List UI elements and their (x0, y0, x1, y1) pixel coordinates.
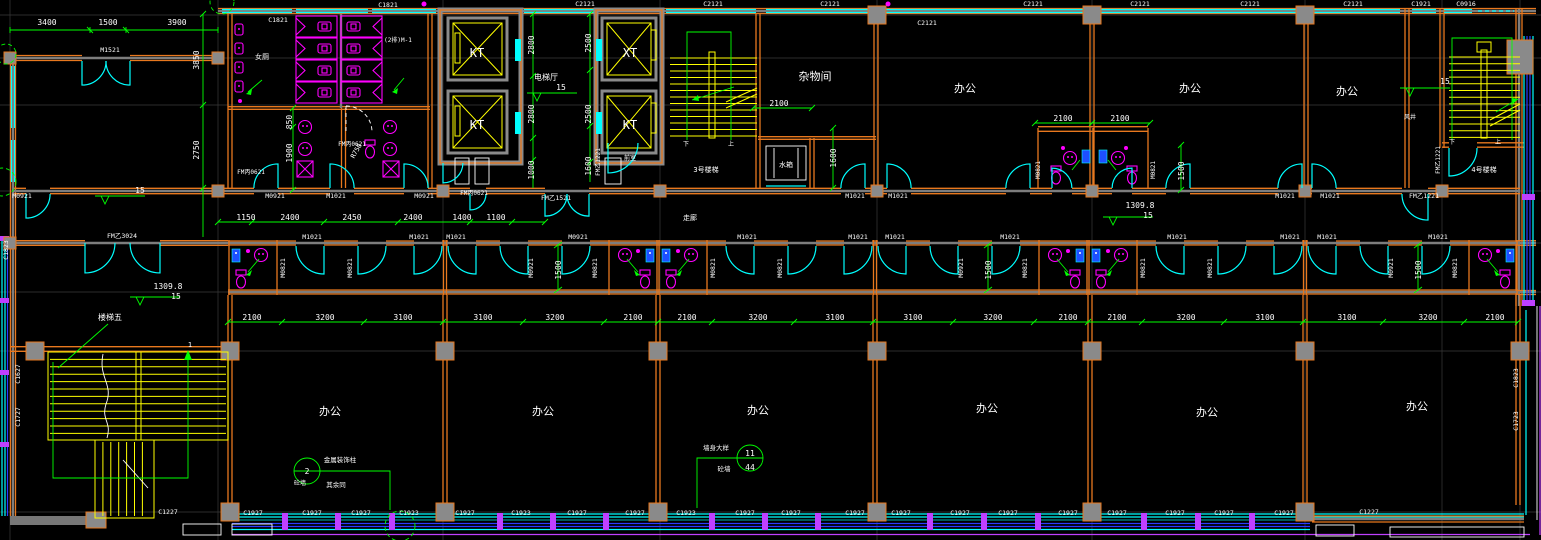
label-text: FM乙1521 (541, 194, 571, 202)
label-text: M0921 (1387, 258, 1395, 278)
label-text: M0921 (265, 192, 285, 200)
sink-icon (384, 121, 397, 134)
label-text: C1821 (378, 1, 398, 9)
label-text: 2100 (1107, 313, 1126, 322)
label-text: C2121 (575, 0, 595, 8)
label-text: 11 (745, 449, 755, 458)
label-text: C2121 (1130, 0, 1150, 8)
label-text: 前室 (624, 154, 636, 162)
toilet-stall (341, 60, 382, 81)
column-icon (649, 503, 667, 521)
label-text: M1021 (1000, 233, 1020, 241)
door-arc-icon (130, 243, 160, 273)
label-text: 1500 (1414, 260, 1423, 279)
label-text: M1021 (737, 233, 757, 241)
toilet-stall (296, 16, 337, 37)
column-icon (221, 503, 239, 521)
label-text: 3100 (1255, 313, 1274, 322)
label-text: M1021 (446, 233, 466, 241)
label-text: M1021 (1167, 233, 1187, 241)
label-text: C2121 (1023, 0, 1043, 8)
label-text: M1021 (845, 192, 865, 200)
label-text: 办公 (1179, 82, 1201, 95)
label-text: C0916 (1456, 0, 1476, 8)
label-text: FM乙1221 (1409, 192, 1439, 200)
sink-icon (1064, 152, 1077, 165)
label-text: C1927 (243, 509, 263, 517)
label-text: C1923 (511, 509, 531, 517)
column-icon (1083, 342, 1101, 360)
label-text: 走廊 (683, 213, 697, 222)
label-text: C1927 (735, 509, 755, 517)
label-text: 850 (285, 115, 294, 130)
label-text: 1500 (1177, 161, 1186, 180)
label-text: 2400 (280, 213, 299, 222)
label-text: M1021 (326, 192, 346, 200)
label-text: M0821 (279, 258, 287, 278)
label-text: C1927 (302, 509, 322, 517)
label-text: 下 (683, 141, 689, 148)
label-text: 2100 (1110, 114, 1129, 123)
sink-icon (1112, 152, 1125, 165)
label-text: C1921 (1411, 0, 1431, 8)
label-text: M1021 (1320, 192, 1340, 200)
label-text: M0821 (1451, 258, 1459, 278)
column-icon (868, 503, 886, 521)
column-icon (1296, 6, 1314, 24)
urinal-icon (235, 24, 243, 35)
label-text: M1021 (885, 233, 905, 241)
label-text: (2排)M-1 (384, 36, 412, 44)
label-text: M1521 (100, 46, 120, 54)
label-text: 1900 (285, 143, 294, 162)
label-text: M0921 (414, 192, 434, 200)
column-icon (1296, 503, 1314, 521)
door-arc-icon (887, 164, 911, 188)
label-text: 下 (1449, 139, 1455, 146)
label-text: C1927 (781, 509, 801, 517)
door-arc-icon (841, 164, 865, 188)
label-text: C1927 (351, 509, 371, 517)
restroom-top (235, 16, 404, 177)
label-text: M0821 (1139, 258, 1147, 278)
level-marker-icon (1400, 88, 1450, 96)
label-text: 3200 (1418, 313, 1437, 322)
column-icon (212, 52, 224, 64)
label-text: 女厕 (255, 52, 269, 61)
floor-plan-svg: 杂物间办公办公办公办公办公办公办公办公办公电梯厅3号楼梯4号楼梯楼梯五水箱走廊女… (0, 0, 1541, 540)
label-text: M0821 (1035, 161, 1042, 179)
label-text: 楼梯五 (98, 312, 122, 322)
door-arc-icon (443, 163, 463, 183)
label-text: 3号楼梯 (693, 165, 718, 174)
label-text: 3100 (473, 313, 492, 322)
label-text: M0821 (1150, 161, 1157, 179)
label-text: KT (623, 118, 637, 132)
label-text: 2450 (342, 213, 361, 222)
label-text: 2100 (623, 313, 642, 322)
label-text: 15 (171, 292, 181, 301)
label-text: 2800 (527, 35, 536, 54)
door-arc-icon (85, 243, 115, 273)
label-text: 1309.8 (1126, 201, 1155, 210)
label-text: C1823 (1512, 368, 1520, 388)
level-marker-icon (95, 196, 145, 204)
column-icon (1083, 6, 1101, 24)
label-text: M0921 (957, 258, 965, 278)
label-text: 1000 (527, 160, 536, 179)
label-text: C1627 (14, 364, 22, 384)
door-arc-icon (1278, 164, 1302, 188)
label-text: 15 (1440, 77, 1450, 86)
label-text: 3200 (315, 313, 334, 322)
label-text: FM乙1221 (1435, 146, 1442, 174)
label-text: 3100 (903, 313, 922, 322)
label-text: 3200 (983, 313, 1002, 322)
label-text: KT (470, 46, 484, 60)
label-text: M0921 (568, 233, 588, 241)
label-text: 办公 (747, 404, 769, 417)
label-text: 3200 (1176, 313, 1195, 322)
label-text: 2800 (527, 104, 536, 123)
grid-lines (0, 0, 1541, 540)
label-text: C1823 (2, 240, 10, 260)
label-text: 2750 (192, 140, 201, 159)
label-text: C1927 (1274, 509, 1294, 517)
toilet-icon (365, 140, 375, 158)
label-text: M0821 (1206, 258, 1214, 278)
toilet-stall (341, 16, 382, 37)
label-text: 1 (188, 341, 192, 349)
label-text: C2121 (703, 0, 723, 8)
label-text: 1500 (554, 260, 563, 279)
label-text: C1227 (1359, 508, 1379, 516)
label-text: 办公 (319, 405, 341, 418)
cad-floor-plan-canvas: 杂物间办公办公办公办公办公办公办公办公办公电梯厅3号楼梯4号楼梯楼梯五水箱走廊女… (0, 0, 1541, 540)
label-text: 杂物间 (799, 69, 832, 83)
label-text: KT (470, 118, 484, 132)
label-text: 1500 (984, 260, 993, 279)
label-text: C1727 (14, 407, 22, 427)
door-arc-icon (404, 164, 428, 188)
column-icon (437, 185, 449, 197)
column-icon (868, 6, 886, 24)
column-icon (868, 342, 886, 360)
label-text: 3100 (393, 313, 412, 322)
label-text: FM丙0621 (338, 141, 366, 148)
toilet-stall (296, 82, 337, 103)
label-text: 办公 (1336, 85, 1358, 98)
label-text: 2100 (1485, 313, 1504, 322)
label-text: C2121 (820, 0, 840, 8)
label-text: 金属装饰柱 (324, 455, 357, 464)
sink-icon (299, 121, 312, 134)
label-text: C2121 (1240, 0, 1260, 8)
label-text: 上 (728, 140, 734, 148)
label-text: C1821 (268, 16, 288, 24)
toilet-stall (341, 82, 382, 103)
label-text: 1150 (236, 213, 255, 222)
label-text: 其余同 (326, 480, 346, 489)
column-icon (436, 342, 454, 360)
label-text: 办公 (532, 405, 554, 418)
office-divider-walls (228, 295, 1520, 505)
elevator-block-1 (440, 10, 521, 184)
label-text: C1723 (1512, 411, 1520, 431)
label-text: C1923 (676, 509, 696, 517)
label-text: 3850 (192, 50, 201, 69)
structural-columns (4, 6, 1529, 521)
door-arc-icon (106, 61, 130, 85)
label-text: XT (623, 46, 637, 60)
urinal-icon (235, 81, 243, 92)
label-text: C1927 (891, 509, 911, 517)
label-text: 15 (135, 186, 145, 195)
label-text: M0821 (1021, 258, 1029, 278)
label-text: 3200 (748, 313, 767, 322)
label-text: 电梯厅 (534, 72, 558, 82)
label-text: 2100 (242, 313, 261, 322)
label-text: C2121 (1343, 0, 1363, 8)
label-text: 2 (305, 467, 310, 476)
label-text: 1600 (584, 156, 593, 175)
column-icon (436, 503, 454, 521)
label-text: M0921 (12, 192, 32, 200)
door-arc-icon (1312, 164, 1336, 188)
door-arc-icon (1006, 164, 1030, 188)
label-text: M0821 (346, 258, 354, 278)
label-text: 风井 (1404, 113, 1416, 121)
label-text: 3400 (37, 18, 56, 27)
axis-dot (422, 2, 427, 7)
label-text: 墙身大样 (703, 443, 730, 452)
column-icon (1086, 185, 1098, 197)
column-icon (221, 342, 239, 360)
level-marker-icon (527, 93, 577, 101)
label-text: 2100 (769, 99, 788, 108)
label-text: 1400 (452, 213, 471, 222)
label-text: 4号楼梯 (1471, 165, 1496, 174)
label-text: 3100 (825, 313, 844, 322)
label-text: C1927 (1058, 509, 1078, 517)
label-text: 办公 (1196, 406, 1218, 419)
label-text: FM乙3024 (107, 232, 137, 240)
label-text: C1927 (950, 509, 970, 517)
label-text: 3200 (545, 313, 564, 322)
label-text: FM丙0621 (460, 190, 488, 197)
column-icon (1299, 185, 1311, 197)
label-text: C1927 (845, 509, 865, 517)
stair-5-left (48, 324, 228, 518)
label-text: 15 (1143, 211, 1153, 220)
labels-layer: 杂物间办公办公办公办公办公办公办公办公办公电梯厅3号楼梯4号楼梯楼梯五水箱走廊女… (2, 0, 1520, 517)
label-text: C1927 (625, 509, 645, 517)
door-arc-icon (82, 61, 106, 85)
interior-walls-top-band (228, 8, 1524, 188)
sink-icon (384, 143, 397, 156)
label-text: M1021 (302, 233, 322, 241)
label-text: 上 (1495, 138, 1501, 146)
label-text: C1923 (399, 509, 419, 517)
label-text: C1927 (455, 509, 475, 517)
label-text: 砼墙 (718, 464, 732, 473)
label-text: M0821 (591, 258, 599, 278)
label-text: 44 (745, 463, 755, 472)
label-text: M1021 (1275, 192, 1295, 200)
label-text: 3900 (167, 18, 186, 27)
label-text: 2500 (584, 33, 593, 52)
label-text: 3100 (1337, 313, 1356, 322)
label-text: M1021 (409, 233, 429, 241)
label-text: 办公 (1406, 400, 1428, 413)
label-text: M1021 (1428, 233, 1448, 241)
column-icon (26, 342, 44, 360)
label-text: 2100 (1058, 313, 1077, 322)
column-icon (1296, 342, 1314, 360)
label-text: 水箱 (779, 160, 793, 169)
label-text: FM乙1221 (595, 148, 602, 176)
label-text: 办公 (976, 402, 998, 415)
label-text: 2100 (1053, 114, 1072, 123)
label-text: FM丙0621 (237, 169, 265, 176)
label-text: 办公 (954, 82, 976, 95)
label-text: M1021 (1317, 233, 1337, 241)
column-icon (871, 185, 883, 197)
left-curtain-wall (0, 236, 9, 516)
label-text: M0921 (527, 258, 535, 278)
label-text: C1227 (158, 508, 178, 516)
toilet-stall (296, 60, 337, 81)
label-text: 1100 (486, 213, 505, 222)
toilet-stall (296, 38, 337, 59)
sink-icon (299, 143, 312, 156)
label-text: 1600 (829, 148, 838, 167)
column-icon (654, 185, 666, 197)
column-icon (1511, 342, 1529, 360)
label-text: C1927 (1214, 509, 1234, 517)
column-icon (1083, 503, 1101, 521)
column-icon (212, 185, 224, 197)
label-text: M1021 (888, 192, 908, 200)
toilet-stall (341, 38, 382, 59)
label-text: C1927 (1107, 509, 1127, 517)
label-text: C1927 (998, 509, 1018, 517)
column-icon (649, 342, 667, 360)
stair-3 (670, 32, 757, 140)
label-text: C2121 (917, 19, 937, 27)
label-text: 2400 (403, 213, 422, 222)
column-icon (4, 52, 16, 64)
label-text: 1309.8 (154, 282, 183, 291)
urinal-icon (235, 43, 243, 54)
label-text: C1927 (1165, 509, 1185, 517)
label-text: M1021 (1280, 233, 1300, 241)
label-text: 15 (556, 83, 566, 92)
label-text: 砼墙 (294, 479, 306, 487)
label-text: M0821 (776, 258, 784, 278)
label-text: M1021 (848, 233, 868, 241)
label-text: M0821 (709, 258, 717, 278)
urinal-icon (235, 62, 243, 73)
label-text: C1927 (567, 509, 587, 517)
label-text: 1500 (98, 18, 117, 27)
label-text: 2500 (584, 104, 593, 123)
label-text: 2100 (677, 313, 696, 322)
